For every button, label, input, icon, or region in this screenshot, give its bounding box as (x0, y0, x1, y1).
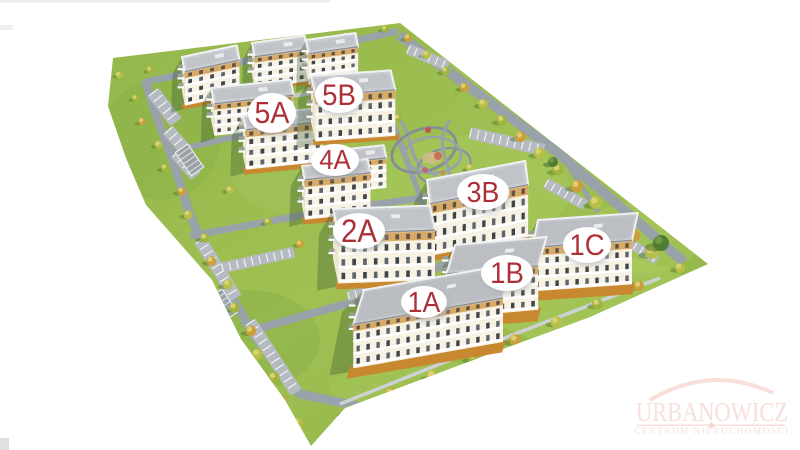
svg-text:1C: 1C (569, 229, 604, 262)
svg-text:5B: 5B (322, 79, 356, 112)
svg-text:1A: 1A (408, 286, 441, 318)
svg-text:CENTRUM NIERUCHOMOŚCI: CENTRUM NIERUCHOMOŚCI (634, 426, 789, 436)
svg-text:3B: 3B (467, 176, 500, 208)
svg-text:1B: 1B (490, 257, 524, 290)
svg-text:4A: 4A (319, 144, 351, 175)
svg-text:5A: 5A (255, 96, 290, 130)
svg-text:2A: 2A (341, 213, 377, 249)
